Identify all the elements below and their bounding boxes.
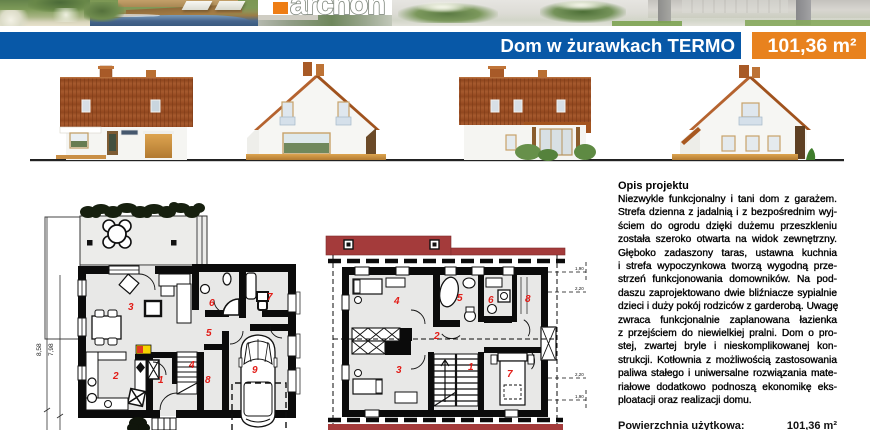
svg-text:8: 8 bbox=[525, 294, 531, 305]
svg-text:3: 3 bbox=[396, 365, 402, 376]
svg-text:1,90: 1,90 bbox=[575, 394, 584, 399]
svg-text:1,90: 1,90 bbox=[575, 266, 584, 271]
svg-text:5: 5 bbox=[457, 293, 463, 304]
svg-text:2,20: 2,20 bbox=[575, 286, 584, 291]
svg-text:4: 4 bbox=[393, 296, 400, 307]
svg-text:1: 1 bbox=[468, 362, 474, 373]
svg-text:6: 6 bbox=[488, 295, 494, 306]
svg-text:2,20: 2,20 bbox=[575, 372, 584, 377]
svg-text:7: 7 bbox=[507, 369, 513, 380]
svg-text:2: 2 bbox=[433, 331, 440, 342]
